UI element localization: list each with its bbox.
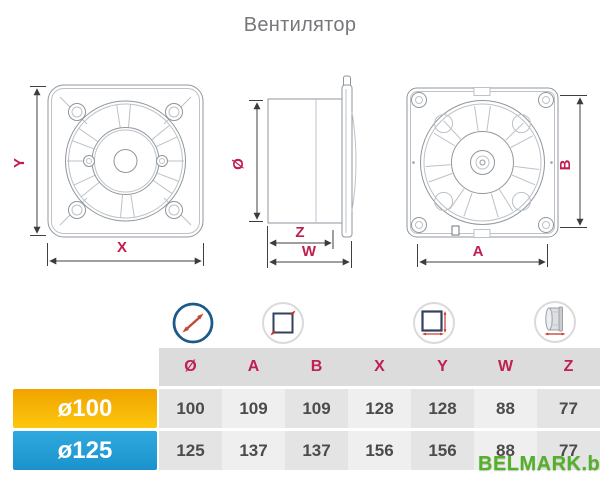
table-cell: 109 [285,389,348,428]
row-label-125: ø125 [13,431,157,470]
row-label-100: ø100 [13,389,157,428]
dim-label-diameter: Ø [230,158,247,170]
dim-label-z: Z [295,224,304,241]
table-header-cell: Y [411,348,474,386]
table-cell: 77 [537,389,600,428]
dim-label-y: Y [11,158,28,168]
dim-label-a: A [473,243,484,260]
table-cell: 128 [411,389,474,428]
diameter-icon [170,300,216,346]
watermark: BELMARK.by [478,453,600,476]
table-header-cell: Ø [159,348,222,386]
table-header-cell: X [348,348,411,386]
plate-diagonal-icon [260,300,306,346]
technical-drawing: Y X Ø Z W [0,0,600,300]
table-cell: 109 [222,389,285,428]
table-cell: 137 [222,431,285,470]
table-header-row: Ø A B X Y W Z [159,348,600,386]
table-cell: 125 [159,431,222,470]
table-cell: 88 [474,389,537,428]
table-cell: 156 [348,431,411,470]
table-header-cell: Z [537,348,600,386]
table-cell: 128 [348,389,411,428]
table-cell: 100 [159,389,222,428]
dim-label-w: W [302,243,317,260]
table-header-cell: A [222,348,285,386]
side-view-drawing: Ø Z W [230,76,356,268]
dim-label-x: X [117,239,127,256]
back-view-drawing: B A [407,88,587,268]
product-spec-sheet: Вентилятор [0,0,600,487]
dim-label-b: B [557,159,574,170]
table-header-cell: B [285,348,348,386]
table-header-cell: W [474,348,537,386]
table-cell: 137 [285,431,348,470]
plate-size-icon [411,300,457,346]
duct-depth-icon [532,299,578,345]
front-view-drawing: Y X [11,85,204,266]
table-cell: 156 [411,431,474,470]
